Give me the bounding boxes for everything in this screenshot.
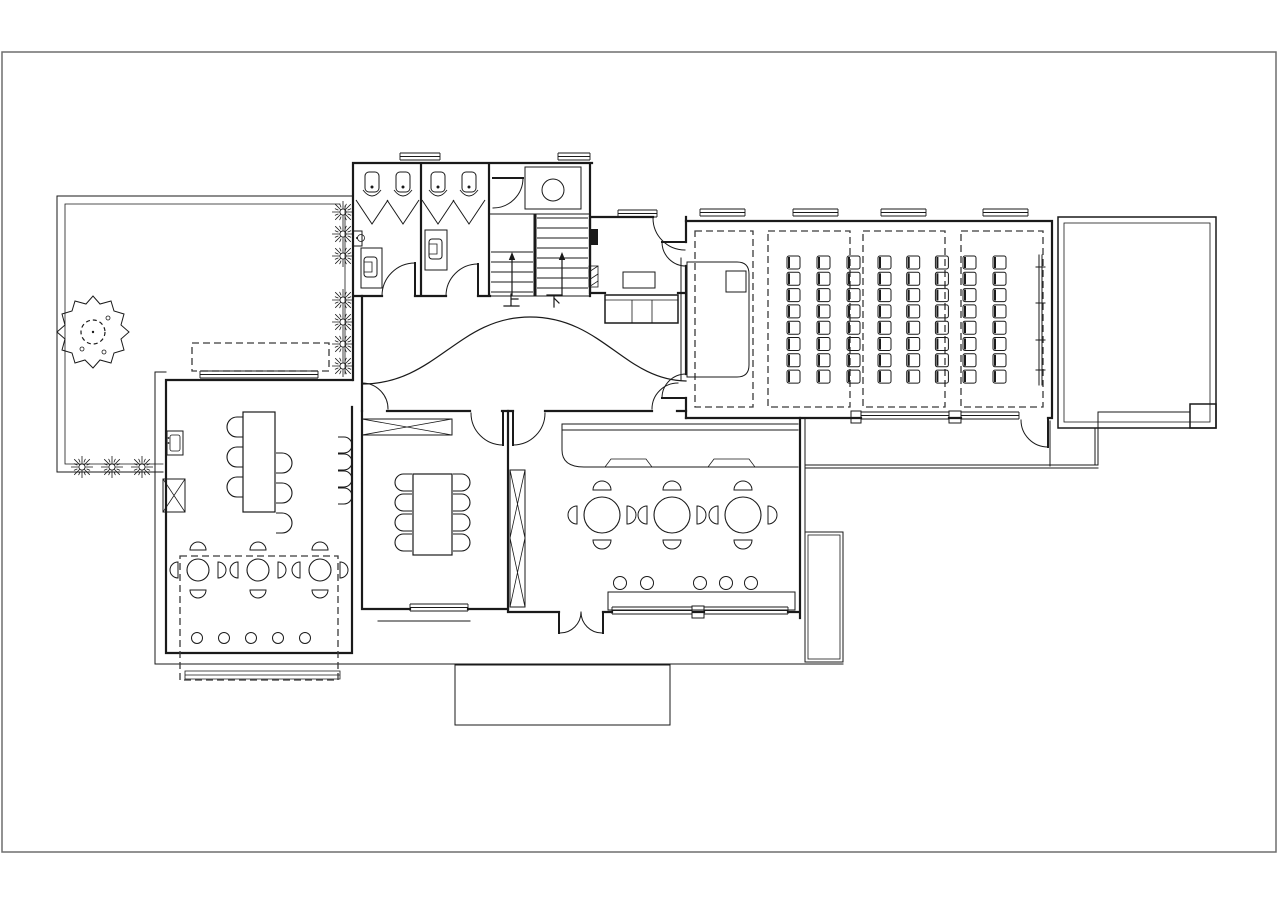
chair <box>338 488 352 504</box>
terrace-inner <box>1064 223 1210 422</box>
door-swing <box>382 263 415 296</box>
terrace-outer <box>1058 217 1216 428</box>
stool <box>745 577 758 590</box>
door-swing <box>471 413 503 445</box>
chair <box>734 481 752 490</box>
podium-platform <box>687 262 749 377</box>
lobby <box>362 295 686 384</box>
urinal-drain <box>371 186 374 189</box>
chair <box>227 417 243 437</box>
chair <box>276 483 292 503</box>
service-counter <box>562 424 798 467</box>
duct-shaft <box>589 229 598 245</box>
right-terrace <box>1058 217 1216 428</box>
urinal-screen <box>453 200 485 224</box>
chair <box>663 540 681 549</box>
shrub <box>332 245 354 267</box>
chair <box>278 562 286 578</box>
conference-room <box>362 419 525 607</box>
toilet-seat-line <box>364 262 372 272</box>
shrub <box>332 289 354 311</box>
shrub <box>101 456 123 478</box>
urinal <box>462 172 476 192</box>
chair <box>292 562 300 578</box>
chair <box>338 471 352 487</box>
shrub-plants <box>71 201 354 478</box>
garden-wall-inner <box>65 204 340 464</box>
stool <box>246 633 257 644</box>
toilet-fixture <box>364 257 377 277</box>
side-terrace-outer <box>805 532 843 662</box>
stool <box>192 633 203 644</box>
window <box>400 153 440 160</box>
door-swing <box>662 242 686 266</box>
urinal <box>396 172 410 192</box>
stair-treads <box>491 218 588 292</box>
toilet-rooms <box>353 172 485 288</box>
stool <box>300 633 311 644</box>
chair <box>453 534 470 551</box>
stool <box>641 577 654 590</box>
door-swing <box>653 218 685 250</box>
window <box>200 371 318 378</box>
dining-room-walls <box>166 380 352 653</box>
counter-sink <box>605 459 652 467</box>
chair <box>276 513 292 533</box>
wall-windows <box>200 153 1028 614</box>
urinal-screen <box>387 200 419 224</box>
auditorium-chairs <box>787 256 1006 383</box>
shrub <box>332 333 354 355</box>
urinal-screen <box>356 200 388 224</box>
chair <box>250 590 266 598</box>
lobby-walls <box>362 296 686 411</box>
door-swing <box>513 413 545 445</box>
side-terrace-inner <box>808 535 840 659</box>
round-table <box>584 497 620 533</box>
tree-center-dot <box>92 331 94 333</box>
shrub <box>332 355 354 377</box>
terrace-corner-pier <box>1190 404 1216 428</box>
x-partition-braces <box>510 470 525 607</box>
sink-tap-dot <box>168 437 170 439</box>
stairs-down-label <box>547 295 562 307</box>
table-chairs <box>227 417 470 551</box>
seating-zone <box>695 231 753 407</box>
window <box>861 412 949 419</box>
toilet-seat-line <box>429 244 437 254</box>
seating-zone <box>961 231 1043 407</box>
stool <box>219 633 230 644</box>
window <box>983 209 1028 216</box>
door-swing <box>662 374 686 398</box>
urinal <box>431 172 445 192</box>
round-table <box>309 559 331 581</box>
chair <box>663 481 681 490</box>
chair <box>697 506 706 524</box>
drinking-fountain <box>353 231 365 246</box>
chair <box>453 474 470 491</box>
tree-speck <box>80 347 84 351</box>
stool <box>720 577 733 590</box>
urinal-screen <box>422 200 454 224</box>
chair <box>395 534 412 551</box>
floor-plan-page <box>0 0 1280 905</box>
staircase <box>491 167 588 307</box>
chair <box>227 477 243 497</box>
shrub-center <box>139 464 145 470</box>
chair <box>338 437 352 453</box>
sink-bowl <box>170 435 180 451</box>
urinal-drain <box>468 186 471 189</box>
fountain-bowl <box>358 235 365 242</box>
chair <box>395 514 412 531</box>
stair-arrow-head <box>509 252 515 260</box>
door-swing <box>560 612 581 633</box>
chair <box>395 494 412 511</box>
x-partition <box>510 470 525 607</box>
stair-landing-edge <box>490 214 590 296</box>
stool <box>694 577 707 590</box>
floor-plan-canvas <box>0 0 1280 905</box>
round-table <box>187 559 209 581</box>
window <box>961 412 1019 419</box>
chair <box>638 506 647 524</box>
cabinet-cross <box>362 419 452 435</box>
wc-stall <box>425 230 447 270</box>
shrub <box>332 223 354 245</box>
chair <box>395 474 412 491</box>
chair <box>312 542 328 550</box>
auditorium-walls <box>686 221 1052 418</box>
basin-counter <box>525 167 581 209</box>
chair <box>170 562 178 578</box>
dining-sill-hatch <box>185 671 340 679</box>
urinal <box>365 172 379 192</box>
chair <box>250 542 266 550</box>
chair <box>453 494 470 511</box>
seating-zone <box>863 231 945 407</box>
chair <box>709 506 718 524</box>
chair <box>230 562 238 578</box>
garden-courtyard <box>57 196 354 478</box>
chair <box>227 447 243 467</box>
window <box>700 209 745 216</box>
chair <box>276 453 292 473</box>
sink-tap-dot <box>168 442 170 444</box>
window <box>410 604 468 611</box>
chair <box>338 454 352 470</box>
tree <box>57 296 129 368</box>
urinal-drain <box>437 186 440 189</box>
reception-window <box>605 295 678 323</box>
tree-speck <box>102 350 106 354</box>
chair <box>453 514 470 531</box>
garden-dashed-zone <box>192 343 329 371</box>
round-tables <box>170 481 777 598</box>
toilet-fixture <box>429 239 442 259</box>
round-table <box>654 497 690 533</box>
sheet-border <box>2 52 1276 852</box>
urinal-drain <box>402 186 405 189</box>
door-swing <box>1021 420 1048 447</box>
seating-zone <box>768 231 850 407</box>
window <box>558 153 590 160</box>
chair <box>768 506 777 524</box>
window <box>612 607 692 614</box>
shrub <box>332 201 354 223</box>
shrub <box>71 456 93 478</box>
chair <box>190 590 206 598</box>
round-table <box>725 497 761 533</box>
side-terrace <box>805 532 843 662</box>
chair <box>593 481 611 490</box>
seating-zones-dashed <box>695 231 1043 407</box>
stair-direction-arrows <box>509 252 565 296</box>
chair <box>218 562 226 578</box>
round-table <box>247 559 269 581</box>
shrub <box>332 311 354 333</box>
shrub-center <box>79 464 85 470</box>
kitchen-sink <box>167 431 183 455</box>
stool <box>273 633 284 644</box>
lectern <box>726 271 746 292</box>
shrub-center <box>109 464 115 470</box>
conference-table <box>413 474 452 555</box>
tree-speck <box>106 316 110 320</box>
reception-window-frame <box>605 295 678 323</box>
garden-wall-outer <box>57 196 352 472</box>
door-swing <box>362 383 388 409</box>
chair <box>190 542 206 550</box>
window <box>881 209 926 216</box>
equipment-table <box>623 272 655 288</box>
fountain-dot <box>356 237 358 239</box>
wash-basin <box>542 179 564 201</box>
entry-step-terrace <box>455 665 670 725</box>
terrace-planter-band <box>1098 412 1190 428</box>
window <box>793 209 838 216</box>
walkway-edges <box>805 418 1098 532</box>
door-swing <box>446 264 478 296</box>
lobby-wave-feature <box>362 317 686 384</box>
door-swing <box>493 178 523 208</box>
chair <box>340 562 348 578</box>
equipment-room <box>589 229 655 288</box>
chair <box>593 540 611 549</box>
chair <box>568 506 577 524</box>
stair-arrow-head <box>559 252 565 260</box>
chair <box>312 590 328 598</box>
window <box>704 607 788 614</box>
chair <box>734 540 752 549</box>
chair <box>627 506 636 524</box>
shrub <box>131 456 153 478</box>
reception-window-panes <box>605 300 678 323</box>
door-swing <box>581 612 602 633</box>
dining-long-table <box>243 412 275 512</box>
counter-sink <box>708 459 755 467</box>
stool <box>614 577 627 590</box>
